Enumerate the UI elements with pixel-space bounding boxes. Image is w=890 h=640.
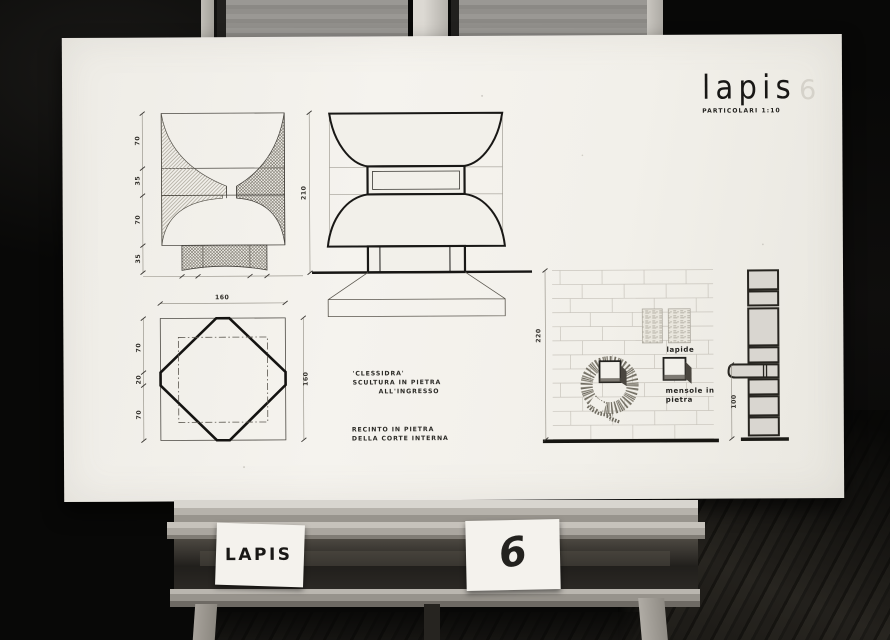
note-recinto-line1: RECINTO IN PIETRA xyxy=(352,425,449,435)
dim-70a: 70 xyxy=(134,136,141,146)
inscription-tablet-left xyxy=(642,309,662,343)
easel-leg-center xyxy=(424,604,440,640)
note-recinto-line2: DELLA CORTE INTERNA xyxy=(352,434,449,444)
note-clessidra: 'CLESSIDRA' SCULTURA IN PIETRA ALL'INGRE… xyxy=(353,369,442,396)
lapide-label: lapide xyxy=(666,346,694,354)
note-clessidra-line1: 'CLESSIDRA' xyxy=(353,369,442,378)
sheet-title: lapis xyxy=(702,70,796,103)
card-lapis: LAPIS xyxy=(215,523,305,588)
dim-35a: 35 xyxy=(135,176,142,186)
sheet-number-ghost: 6 xyxy=(799,75,816,106)
mensola-shelf-profile xyxy=(729,364,779,377)
note-recinto: RECINTO IN PIETRA DELLA CORTE INTERNA xyxy=(352,425,449,444)
wall-elevation: lapide mensole in pietra xyxy=(542,270,719,444)
dim-160-right: 160 xyxy=(303,371,310,386)
dim-70c: 70 xyxy=(135,343,142,353)
dim-35b: 35 xyxy=(135,254,142,264)
photograph-scene: lapide mensole in pietra xyxy=(0,0,890,640)
mensole-label-line1: mensole in xyxy=(666,387,715,395)
dim-70b: 70 xyxy=(135,215,142,225)
title-block: lapis 6 PARTICOLARI 1:10 xyxy=(702,70,852,115)
dim-220: 220 xyxy=(535,328,542,343)
wall-section-stack xyxy=(728,270,789,441)
dim-160-top: 160 xyxy=(215,294,230,301)
note-clessidra-line2: SCULTURA IN PIETRA xyxy=(353,378,442,387)
presentation-board: lapide mensole in pietra xyxy=(62,34,844,502)
stone-course-lines xyxy=(552,270,714,440)
dim-70d: 70 xyxy=(136,410,143,420)
inscription-tablet-right xyxy=(668,309,690,343)
easel-tray-top-rail xyxy=(174,500,698,522)
clessidra-plan-view xyxy=(160,318,286,441)
clessidra-elevation-view xyxy=(311,112,532,317)
card-number: 6 xyxy=(465,519,560,591)
clessidra-section-view xyxy=(161,113,285,271)
mensola-block xyxy=(663,358,691,384)
dim-20: 20 xyxy=(136,375,143,385)
easel-leg-left xyxy=(193,604,218,640)
note-clessidra-line3: ALL'INGRESSO xyxy=(353,387,442,396)
dim-210: 210 xyxy=(301,185,308,200)
card-lapis-text: LAPIS xyxy=(225,545,293,565)
easel-leg-right xyxy=(638,598,668,640)
dim-100: 100 xyxy=(731,394,738,409)
card-number-text: 6 xyxy=(495,528,530,578)
wreath-with-block xyxy=(586,361,632,422)
mensole-label-line2: pietra xyxy=(666,396,693,404)
sheet-subtitle: PARTICOLARI 1:10 xyxy=(702,107,852,115)
